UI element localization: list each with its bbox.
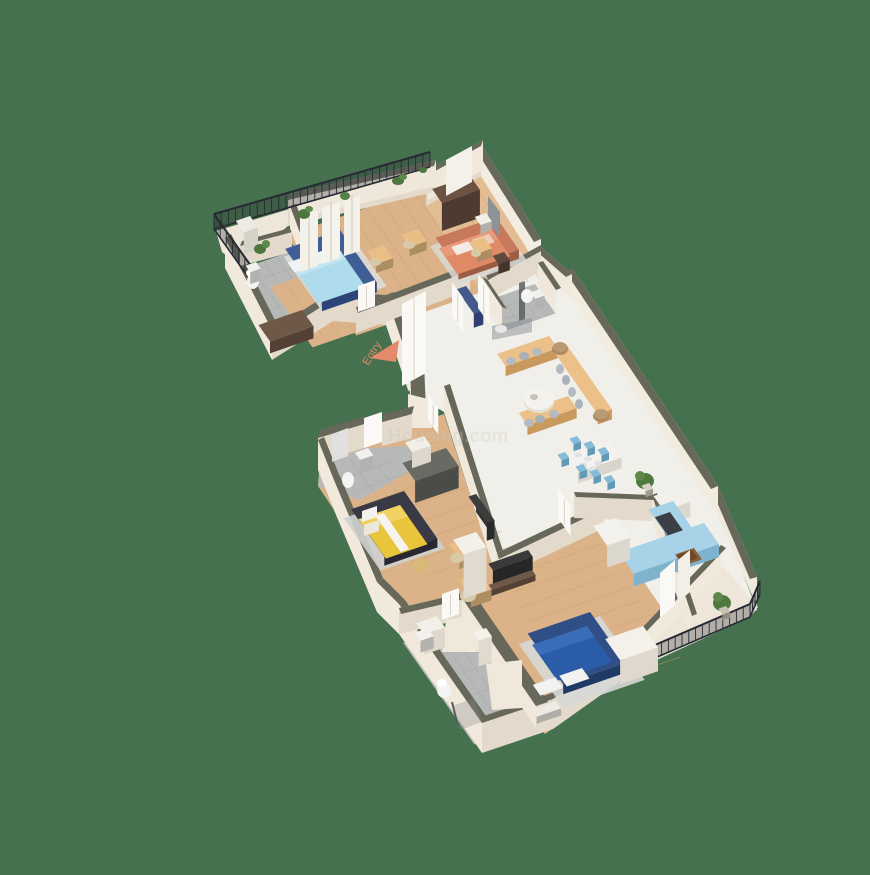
svg-text:Housing.com: Housing.com xyxy=(388,426,508,447)
